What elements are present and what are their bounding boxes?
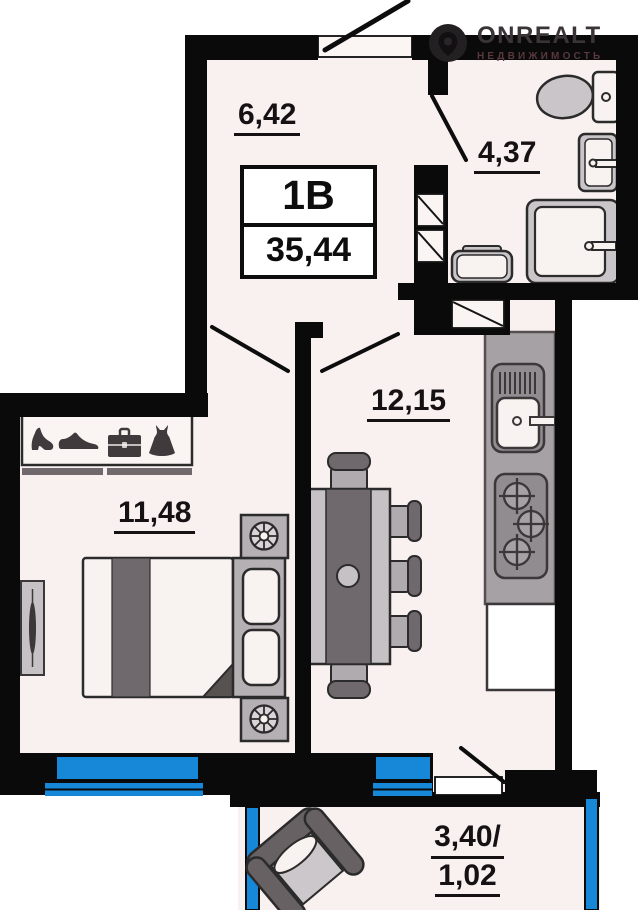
radiator bbox=[21, 581, 44, 675]
fridge bbox=[487, 604, 556, 690]
bathroom-door-jamb bbox=[428, 60, 448, 95]
shower-icon bbox=[527, 200, 619, 283]
dining-table bbox=[309, 489, 390, 664]
floor-plan-drawing bbox=[0, 0, 638, 910]
pillow bbox=[243, 630, 279, 685]
watermark: ONREALT НЕДВИЖИМОСТЬ bbox=[428, 23, 603, 63]
washing-machine-icon bbox=[452, 246, 512, 282]
floor-plan: 6,42 1В 35,44 4,37 12,15 11,48 3,40/ 1,0… bbox=[0, 0, 638, 910]
watermark-brand: ONREALT bbox=[477, 24, 603, 48]
bathroom-sink-icon bbox=[579, 134, 617, 191]
kitchen bbox=[485, 332, 556, 690]
location-pin-icon bbox=[428, 23, 468, 63]
pillow bbox=[243, 569, 279, 624]
watermark-tagline: НЕДВИЖИМОСТЬ bbox=[477, 51, 603, 62]
bathroom-right-wall bbox=[616, 35, 638, 300]
unit-total-area-label: 35,44 bbox=[244, 227, 373, 275]
nightstand bbox=[241, 515, 288, 558]
hallway-area-label: 6,42 bbox=[234, 98, 300, 136]
nightstand bbox=[241, 698, 288, 741]
bedroom-area-label: 11,48 bbox=[114, 496, 195, 534]
balcony-door-leaf bbox=[435, 777, 502, 795]
stove-icon bbox=[495, 474, 549, 578]
unit-title-box: 1В 35,44 bbox=[240, 165, 377, 279]
kitchen-right-wall bbox=[555, 300, 572, 772]
unit-type-label: 1В bbox=[244, 169, 373, 227]
balcony-area-label: 3,40/ 1,02 bbox=[405, 820, 530, 897]
bed bbox=[83, 558, 285, 697]
chair bbox=[328, 453, 370, 492]
mattress bbox=[83, 558, 233, 697]
left-wall bbox=[0, 393, 20, 795]
center-wall bbox=[295, 322, 311, 775]
bedroom-doorway-floor bbox=[205, 330, 305, 415]
hallway-left-wall bbox=[185, 35, 207, 405]
wardrobe bbox=[22, 415, 192, 475]
chair bbox=[328, 662, 370, 698]
living-kitchen-area-label: 12,15 bbox=[367, 384, 450, 422]
bed-runner bbox=[112, 558, 150, 697]
bathroom-area-label: 4,37 bbox=[474, 136, 540, 174]
bedroom-top-wall bbox=[0, 393, 208, 417]
balcony-glazing-right bbox=[585, 798, 598, 910]
